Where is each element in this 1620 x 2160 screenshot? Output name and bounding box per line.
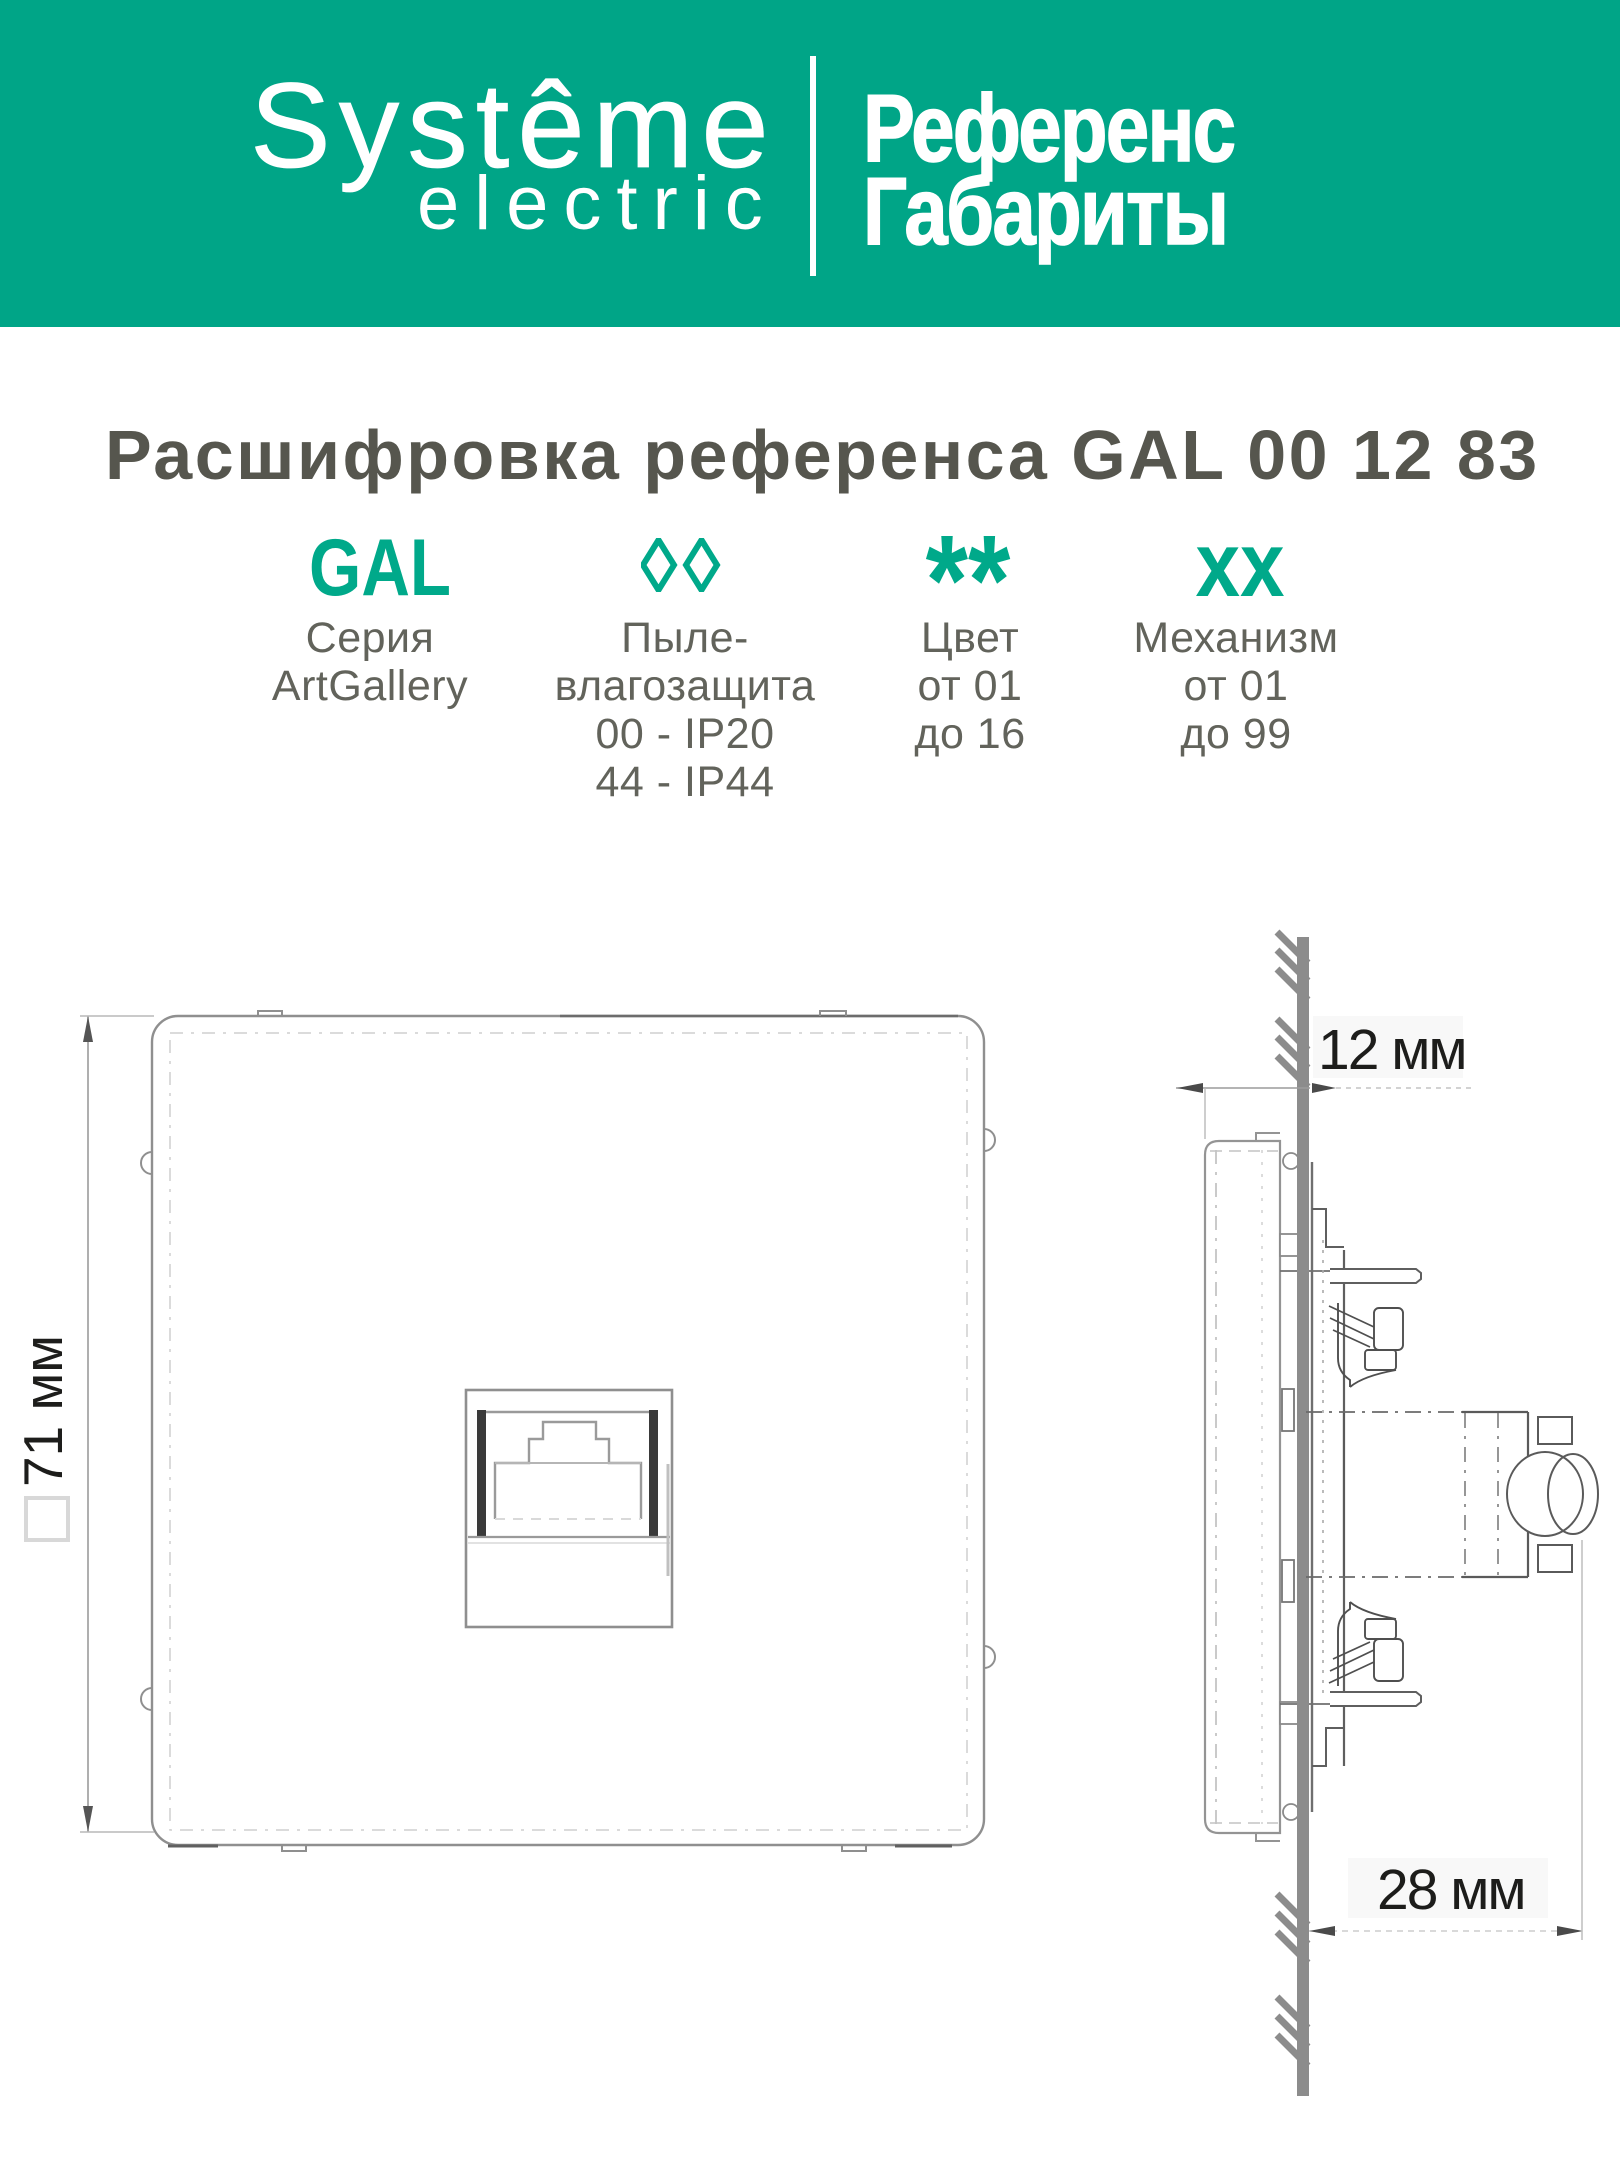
svg-text:28 мм: 28 мм (1377, 1858, 1525, 1922)
svg-text:71 мм: 71 мм (12, 1335, 74, 1487)
svg-text:12 мм: 12 мм (1318, 1018, 1466, 1082)
